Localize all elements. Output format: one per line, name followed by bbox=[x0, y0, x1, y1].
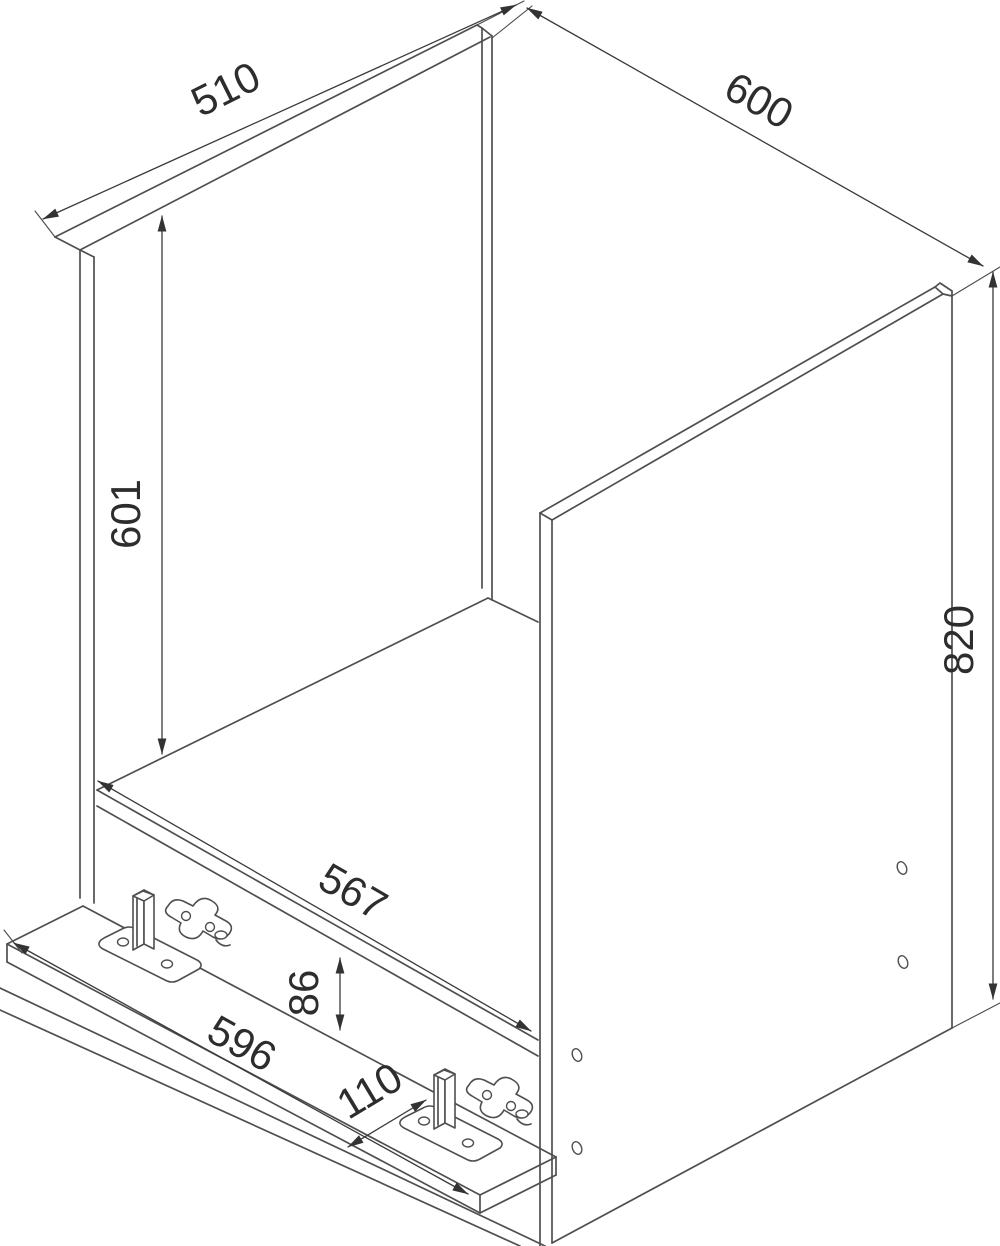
dimension-86: 86 bbox=[280, 958, 340, 1030]
left-side-panel bbox=[55, 25, 492, 903]
dimension-label-601: 601 bbox=[102, 479, 149, 549]
hinge-bracket-right bbox=[400, 1069, 532, 1161]
screw-holes bbox=[570, 860, 909, 1155]
dimension-820: 820 bbox=[935, 272, 1000, 1028]
dimension-label-600: 600 bbox=[717, 63, 801, 138]
dimension-label-596: 596 bbox=[200, 1006, 284, 1081]
dimension-label-510: 510 bbox=[184, 52, 268, 125]
right-side-panel bbox=[540, 283, 952, 1246]
technical-drawing-page: 510 600 601 820 567 86 596 110 bbox=[0, 0, 1000, 1246]
hinge-rail bbox=[7, 906, 556, 1213]
dimension-601: 601 bbox=[102, 216, 162, 754]
cabinet-isometric-drawing: 510 600 601 820 567 86 596 110 bbox=[0, 0, 1000, 1246]
dimension-label-820: 820 bbox=[935, 605, 982, 675]
dimension-label-86: 86 bbox=[280, 970, 327, 1017]
hinge-bracket-left bbox=[99, 890, 231, 982]
bottom-board bbox=[0, 988, 545, 1246]
dimension-600: 600 bbox=[492, 6, 1000, 296]
dimension-510: 510 bbox=[35, 1, 524, 237]
dimension-110: 110 bbox=[329, 1053, 426, 1147]
dimension-596: 596 bbox=[4, 930, 468, 1194]
